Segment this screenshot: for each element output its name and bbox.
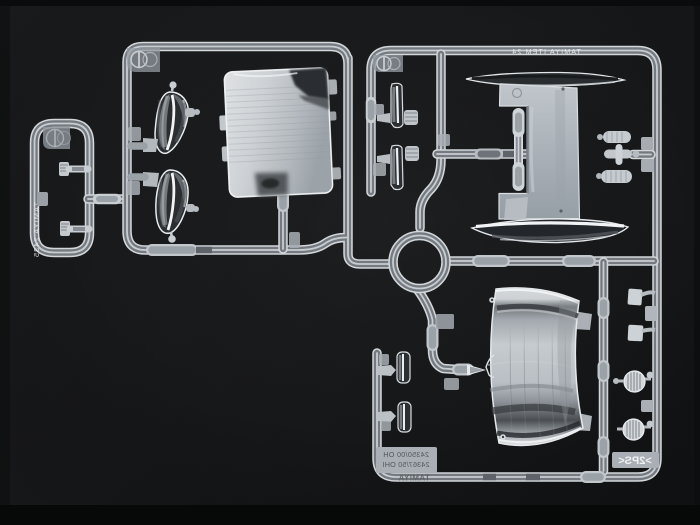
svg-text:TAMIYA ITEM 24: TAMIYA ITEM 24: [511, 49, 581, 56]
svg-text:24367/50 OHI: 24367/50 OHI: [382, 460, 429, 469]
svg-text:>2PS<: >2PS<: [618, 455, 652, 467]
svg-text:TAMIYA 2435: TAMIYA 2435: [32, 202, 41, 258]
svg-text:TAMIYA: TAMIYA: [398, 474, 430, 483]
svg-text:24350/00 OH: 24350/00 OH: [383, 450, 429, 459]
